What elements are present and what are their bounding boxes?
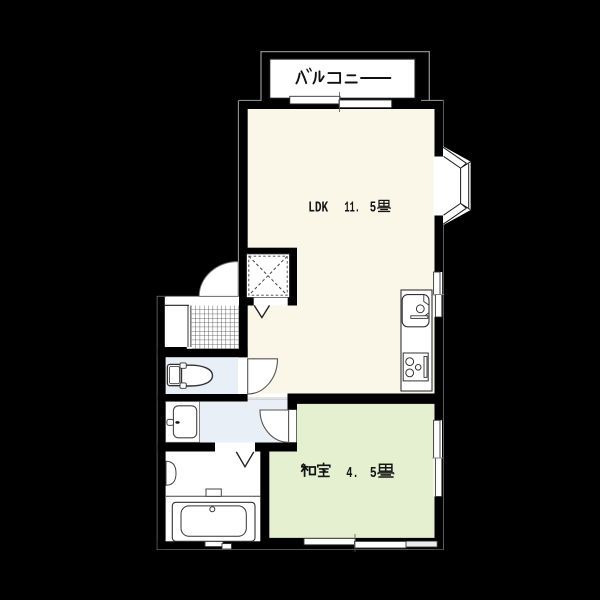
svg-text:4.: 4. [346,464,358,482]
svg-text:5: 5 [370,201,376,217]
svg-text:11.: 11. [344,201,360,217]
svg-text:LDK: LDK [308,201,328,217]
svg-text:5: 5 [370,464,377,482]
